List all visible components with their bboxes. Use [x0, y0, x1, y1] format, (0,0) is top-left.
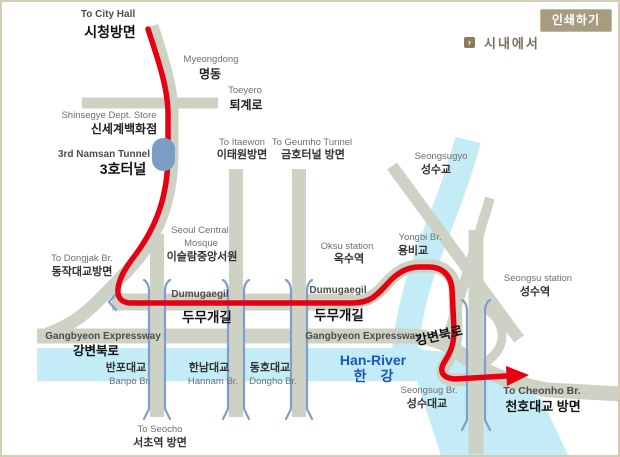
print-button[interactable]: 인쇄하기 — [540, 9, 612, 32]
label-cheonho-ko: 천호대교 방면 — [505, 400, 580, 413]
label-seocho-ko: 서초역 방면 — [133, 438, 187, 449]
label-myeongdong-ko: 명동 — [199, 68, 221, 80]
label-shinsegye-en: Shinsegye Dept. Store — [61, 111, 156, 121]
section-title-row: › 시내에서 — [464, 33, 540, 52]
label-dumugaegil-left-en: Dumugaegil — [171, 290, 228, 300]
label-geumho-ko: 금호터널 방면 — [281, 150, 345, 161]
label-mosque-ko: 이슬람중앙서원 — [167, 252, 238, 263]
label-banpo-en: Banpo Br. — [109, 377, 151, 387]
label-itaewon-en: To Itaewon — [219, 138, 265, 148]
label-oksu-en: Oksu station — [321, 242, 374, 252]
label-city-hall-en: To City Hall — [81, 10, 135, 20]
label-dongjak-en: To Dongjak Br. — [51, 254, 113, 264]
label-hannam-ko: 한남대교 — [189, 363, 229, 374]
label-dongjak-ko: 동작대교방면 — [52, 267, 113, 278]
label-myeongdong-en: Myeongdong — [184, 55, 239, 65]
section-title: 시내에서 — [484, 33, 540, 52]
label-itaewon-ko: 이태원방면 — [217, 150, 268, 161]
label-cheonho-en: To Cheonho Br. — [503, 386, 580, 397]
label-dongho-en: Dongho Br. — [249, 377, 297, 387]
label-namsan-tunnel-en: 3rd Namsan Tunnel — [58, 150, 150, 160]
map-frame: To City Hall 시청방면 Myeongdong 명동 Toeyero … — [0, 0, 620, 457]
label-seocho-en: To Seocho — [138, 425, 183, 435]
label-dumugaegil-left-ko: 두무개길 — [182, 311, 232, 325]
label-han-river-ko: 한 강 — [354, 369, 399, 383]
label-oksu-ko: 옥수역 — [334, 254, 364, 265]
label-han-river-en: Han-River — [340, 353, 406, 367]
label-shinsegye-ko: 신세계백화점 — [91, 123, 157, 135]
label-gangbyeon-right-en: Gangbyeon Expressway — [305, 332, 421, 342]
tunnel-marker — [152, 138, 175, 171]
label-yongbi-en: Yongbi Br. — [399, 233, 442, 243]
label-seongsugyo-ko: 성수교 — [421, 165, 451, 176]
label-seongsu-br-en: Seongsug Br. — [400, 386, 457, 396]
label-seongsugyo-en: Seongsugyo — [415, 152, 468, 162]
label-geumho-en: To Geumho Tunnel — [272, 138, 352, 148]
arrow-bullet-icon: › — [464, 37, 475, 48]
label-dumugaegil-right-ko: 두무개길 — [314, 309, 364, 323]
label-mosque-en1: Seoul Central — [171, 226, 229, 236]
label-hannam-en: Hannam Br. — [188, 377, 238, 387]
label-banpo-ko: 반포대교 — [106, 363, 146, 374]
label-city-hall-ko: 시청방면 — [84, 25, 136, 39]
label-gangbyeon-left-en: Gangbyeon Expressway — [45, 332, 161, 342]
label-gangbyeon-left-ko: 강변북로 — [73, 345, 119, 358]
label-seongsu-station-en: Seongsu station — [504, 274, 572, 284]
label-toeyero-ko: 퇴계로 — [229, 99, 262, 111]
label-seongsu-br-ko: 성수대교 — [407, 399, 447, 410]
label-mosque-en2: Mosque — [184, 239, 218, 249]
label-toeyero-en: Toeyero — [228, 86, 262, 96]
label-namsan-tunnel-ko: 3호터널 — [100, 162, 146, 176]
label-dongho-ko: 동호대교 — [250, 363, 290, 374]
label-seongsu-station-ko: 성수역 — [520, 287, 550, 298]
label-dumugaegil-right-en: Dumugaegil — [309, 286, 366, 296]
label-yongbi-ko: 용비교 — [398, 246, 428, 257]
